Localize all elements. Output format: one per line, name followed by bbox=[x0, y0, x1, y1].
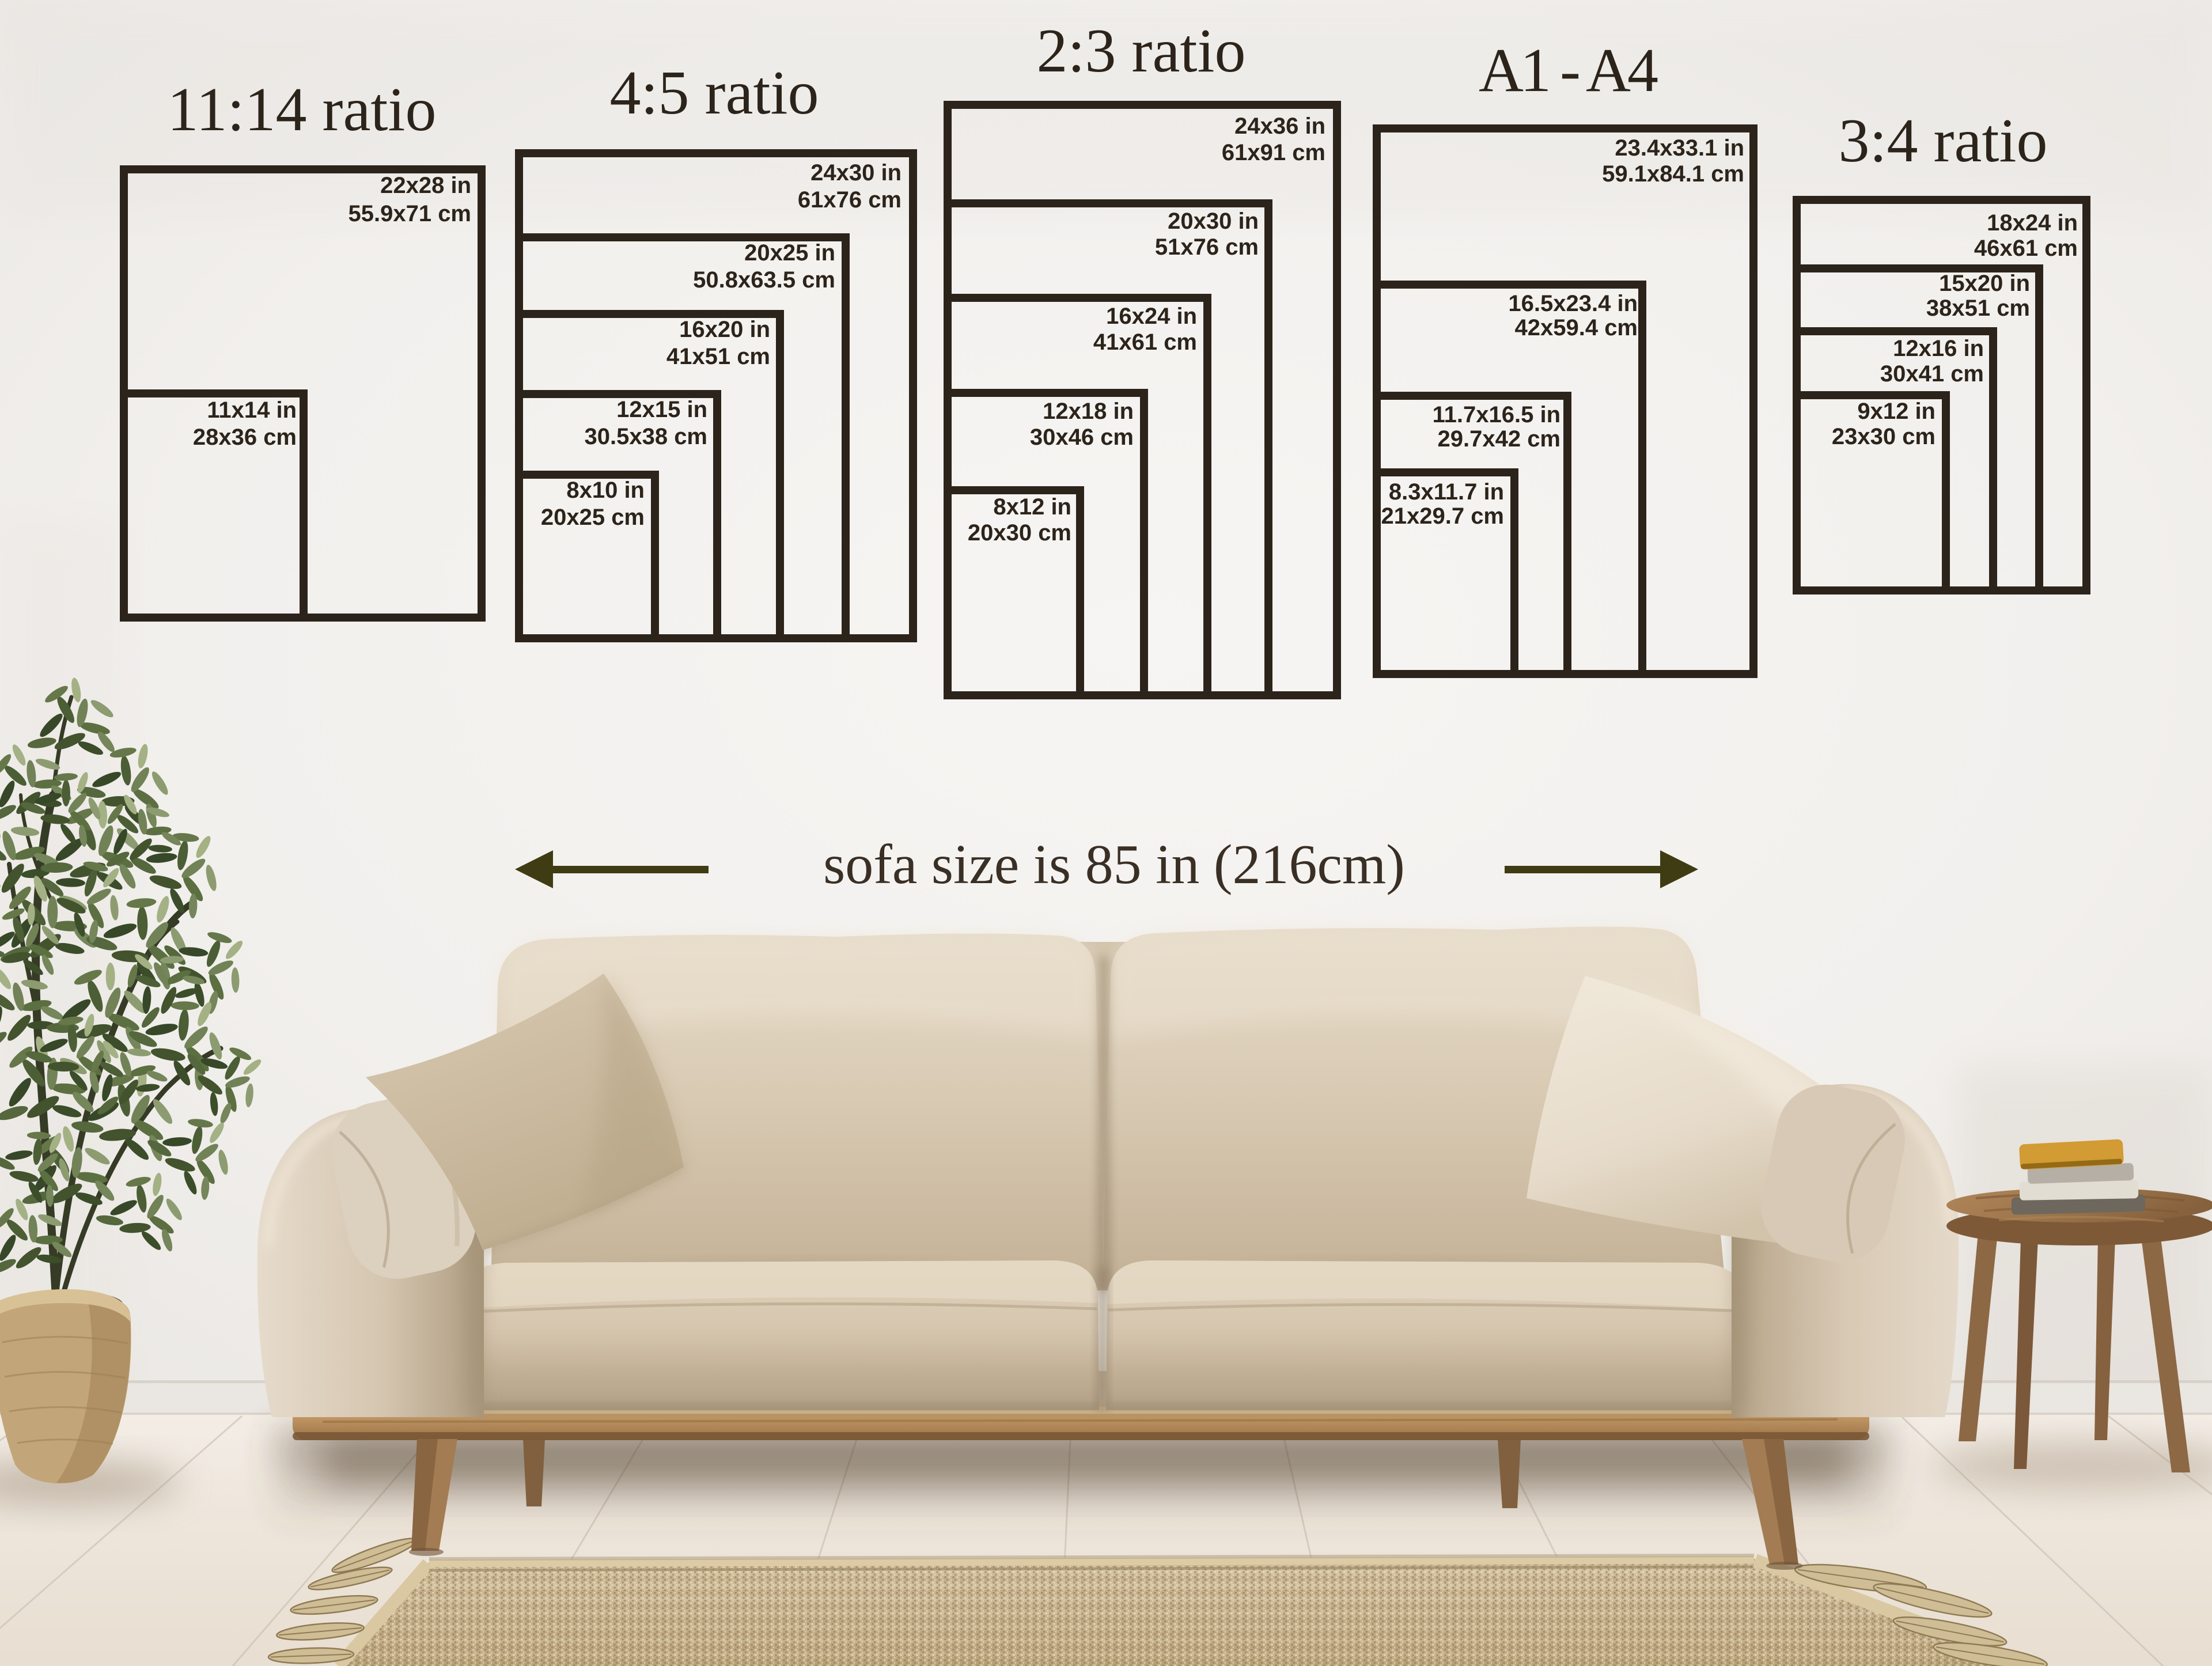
svg-text:28x36 cm: 28x36 cm bbox=[193, 425, 297, 450]
svg-text:42x59.4 cm: 42x59.4 cm bbox=[1514, 315, 1638, 340]
svg-text:20x25 cm: 20x25 cm bbox=[541, 505, 645, 530]
svg-text:21x29.7 cm: 21x29.7 cm bbox=[1381, 503, 1504, 529]
svg-text:11x14 in: 11x14 in bbox=[207, 397, 297, 423]
svg-text:3:4 ratio: 3:4 ratio bbox=[1839, 107, 2048, 175]
svg-text:55.9x71 cm: 55.9x71 cm bbox=[348, 201, 471, 226]
svg-text:23.4x33.1 in: 23.4x33.1 in bbox=[1615, 135, 1744, 161]
svg-text:29.7x42 cm: 29.7x42 cm bbox=[1437, 426, 1560, 452]
svg-text:4:5 ratio: 4:5 ratio bbox=[610, 59, 819, 127]
svg-text:41x61 cm: 41x61 cm bbox=[1093, 330, 1197, 355]
svg-text:16x20 in: 16x20 in bbox=[679, 317, 770, 342]
svg-text:2:3 ratio: 2:3 ratio bbox=[1037, 17, 1246, 85]
svg-text:16x24 in: 16x24 in bbox=[1106, 304, 1197, 329]
svg-text:30x46 cm: 30x46 cm bbox=[1030, 425, 1134, 450]
svg-text:16.5x23.4 in: 16.5x23.4 in bbox=[1508, 291, 1638, 316]
svg-text:8x12 in: 8x12 in bbox=[993, 494, 1071, 520]
svg-text:41x51 cm: 41x51 cm bbox=[666, 344, 770, 369]
svg-text:8x10 in: 8x10 in bbox=[566, 478, 645, 503]
svg-text:51x76 cm: 51x76 cm bbox=[1155, 234, 1259, 260]
svg-text:30.5x38 cm: 30.5x38 cm bbox=[584, 424, 707, 449]
svg-text:30x41 cm: 30x41 cm bbox=[1880, 361, 1984, 387]
svg-text:12x15 in: 12x15 in bbox=[616, 397, 707, 422]
svg-text:8.3x11.7 in: 8.3x11.7 in bbox=[1389, 479, 1504, 505]
svg-text:A1 - A4: A1 - A4 bbox=[1479, 36, 1658, 105]
svg-text:61x76 cm: 61x76 cm bbox=[798, 187, 902, 213]
svg-text:sofa size is 85 in (216cm): sofa size is 85 in (216cm) bbox=[823, 834, 1405, 896]
svg-text:12x18 in: 12x18 in bbox=[1043, 399, 1134, 424]
svg-text:24x30 in: 24x30 in bbox=[810, 160, 902, 185]
svg-text:20x25 in: 20x25 in bbox=[744, 240, 835, 266]
svg-text:59.1x84.1 cm: 59.1x84.1 cm bbox=[1602, 161, 1744, 187]
svg-text:9x12 in: 9x12 in bbox=[1857, 399, 1935, 424]
svg-text:22x28 in: 22x28 in bbox=[380, 173, 471, 198]
svg-text:46x61 cm: 46x61 cm bbox=[1974, 236, 2078, 261]
svg-text:61x91 cm: 61x91 cm bbox=[1222, 140, 1325, 165]
svg-text:23x30 cm: 23x30 cm bbox=[1832, 424, 1935, 449]
svg-text:20x30 in: 20x30 in bbox=[1168, 209, 1259, 234]
svg-text:50.8x63.5 cm: 50.8x63.5 cm bbox=[693, 267, 835, 293]
svg-text:11:14 ratio: 11:14 ratio bbox=[168, 75, 437, 144]
svg-text:38x51 cm: 38x51 cm bbox=[1926, 296, 2030, 321]
svg-text:11.7x16.5 in: 11.7x16.5 in bbox=[1433, 402, 1560, 427]
svg-text:24x36 in: 24x36 in bbox=[1234, 113, 1325, 139]
svg-text:12x16 in: 12x16 in bbox=[1893, 336, 1984, 361]
svg-text:18x24 in: 18x24 in bbox=[1987, 210, 2078, 236]
svg-text:20x30 cm: 20x30 cm bbox=[968, 520, 1071, 546]
svg-text:15x20 in: 15x20 in bbox=[1939, 271, 2030, 296]
